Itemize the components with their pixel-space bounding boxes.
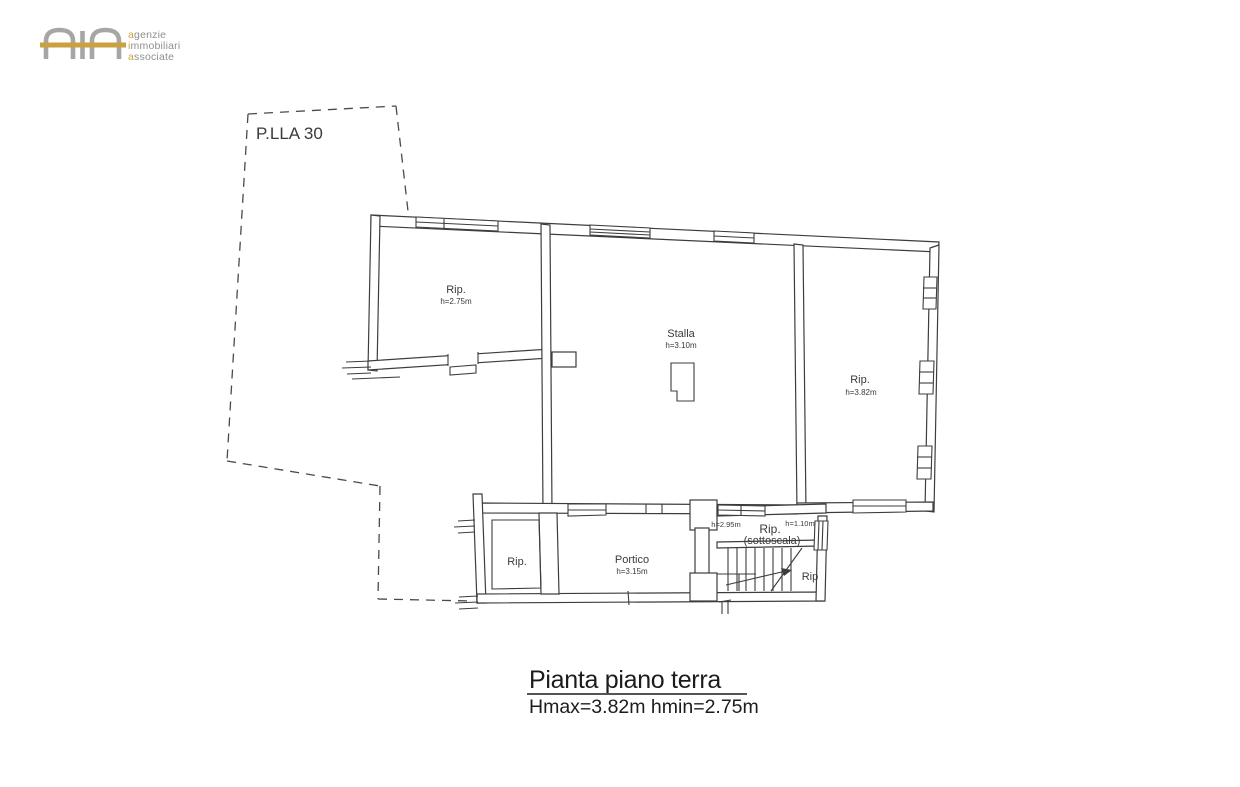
height-sottoscala-left: h=2.95m [711, 520, 740, 529]
parcel-boundary: P.LLA 30 [227, 106, 472, 601]
room-outline-ripsw [492, 520, 541, 589]
door-stalla-portico [646, 504, 662, 514]
door-gap [646, 505, 662, 513]
parcel-edge-top [248, 106, 396, 114]
hatch-marks [342, 361, 731, 614]
wall-divider-stalla-rip [794, 244, 806, 513]
height-sottoscala-right: h=1.10m [785, 519, 814, 528]
parcel-edge-left [227, 114, 248, 461]
room-label-rip-nw: Rip. [446, 284, 466, 296]
room-qualifier-sottoscala: (sottoscala) [744, 535, 801, 547]
hatch-mark [459, 596, 478, 597]
room-height-portico: h=3.15m [616, 567, 648, 576]
parcel-edge-diagonal [227, 461, 380, 486]
wall-ripsw-right [539, 513, 559, 594]
room-label-rip-stairs: Rip [802, 571, 819, 583]
scanned-floor-plan-page: agenzie immobiliari associate P.LLA 30 [0, 0, 1240, 787]
staircase [717, 548, 802, 591]
parcel-label: P.LLA 30 [256, 124, 323, 143]
parcel-edge-lower-right [378, 486, 380, 599]
stalla-trough [671, 363, 694, 401]
caption-block: Pianta piano terra Hmax=3.82m hmin=2.75m [527, 666, 759, 718]
hatch-mark [454, 526, 475, 527]
room-labels: Rip. h=2.75m Stalla h=3.10m Rip. h=3.82m… [440, 284, 877, 583]
door-threshold [450, 365, 476, 375]
room-label-portico: Portico [615, 554, 649, 566]
hatch-mark [455, 602, 478, 603]
room-height-rip-nw: h=2.75m [440, 297, 472, 306]
hatch-mark [458, 520, 475, 521]
room-height-stalla: h=3.10m [665, 341, 697, 350]
room-height-rip-e: h=3.82m [845, 388, 877, 397]
room-label-rip-e: Rip. [850, 374, 870, 386]
wall-nw-left [368, 215, 380, 371]
pillar-portico-bottom [690, 573, 717, 601]
door-nw [448, 352, 478, 375]
window-symbol [923, 277, 937, 309]
logo-gold-bar [40, 43, 126, 48]
building-walls [368, 215, 939, 603]
hatch-mark [342, 367, 371, 368]
wall-divider-nw-stalla [541, 224, 552, 513]
window-symbol [919, 361, 934, 394]
hatch-mark [347, 373, 371, 374]
door-gap [448, 352, 478, 366]
parcel-edge-right [396, 106, 408, 211]
room-label-rip-sw: Rip. [507, 556, 527, 568]
logo-line-3: associate [128, 51, 174, 63]
floor-plan-drawing: agenzie immobiliari associate P.LLA 30 [0, 0, 1240, 787]
hatch-mark [346, 361, 371, 362]
hatch-mark [352, 377, 400, 379]
window-symbol [814, 521, 828, 550]
hatch-mark [459, 608, 478, 609]
room-label-stalla: Stalla [667, 328, 695, 340]
wall-portico-east [695, 528, 709, 575]
parcel-edge-bottom [378, 599, 472, 601]
plan-title: Pianta piano terra [529, 666, 721, 694]
room-label-sottoscala: Rip. [759, 522, 780, 536]
hatch-mark [458, 532, 475, 533]
window-symbol [917, 446, 932, 479]
wall-band-bottom [477, 592, 824, 603]
pilaster-stalla-west [552, 352, 576, 367]
plan-subtitle: Hmax=3.82m hmin=2.75m [529, 696, 759, 718]
agency-logo: agenzie immobiliari associate [40, 29, 180, 63]
